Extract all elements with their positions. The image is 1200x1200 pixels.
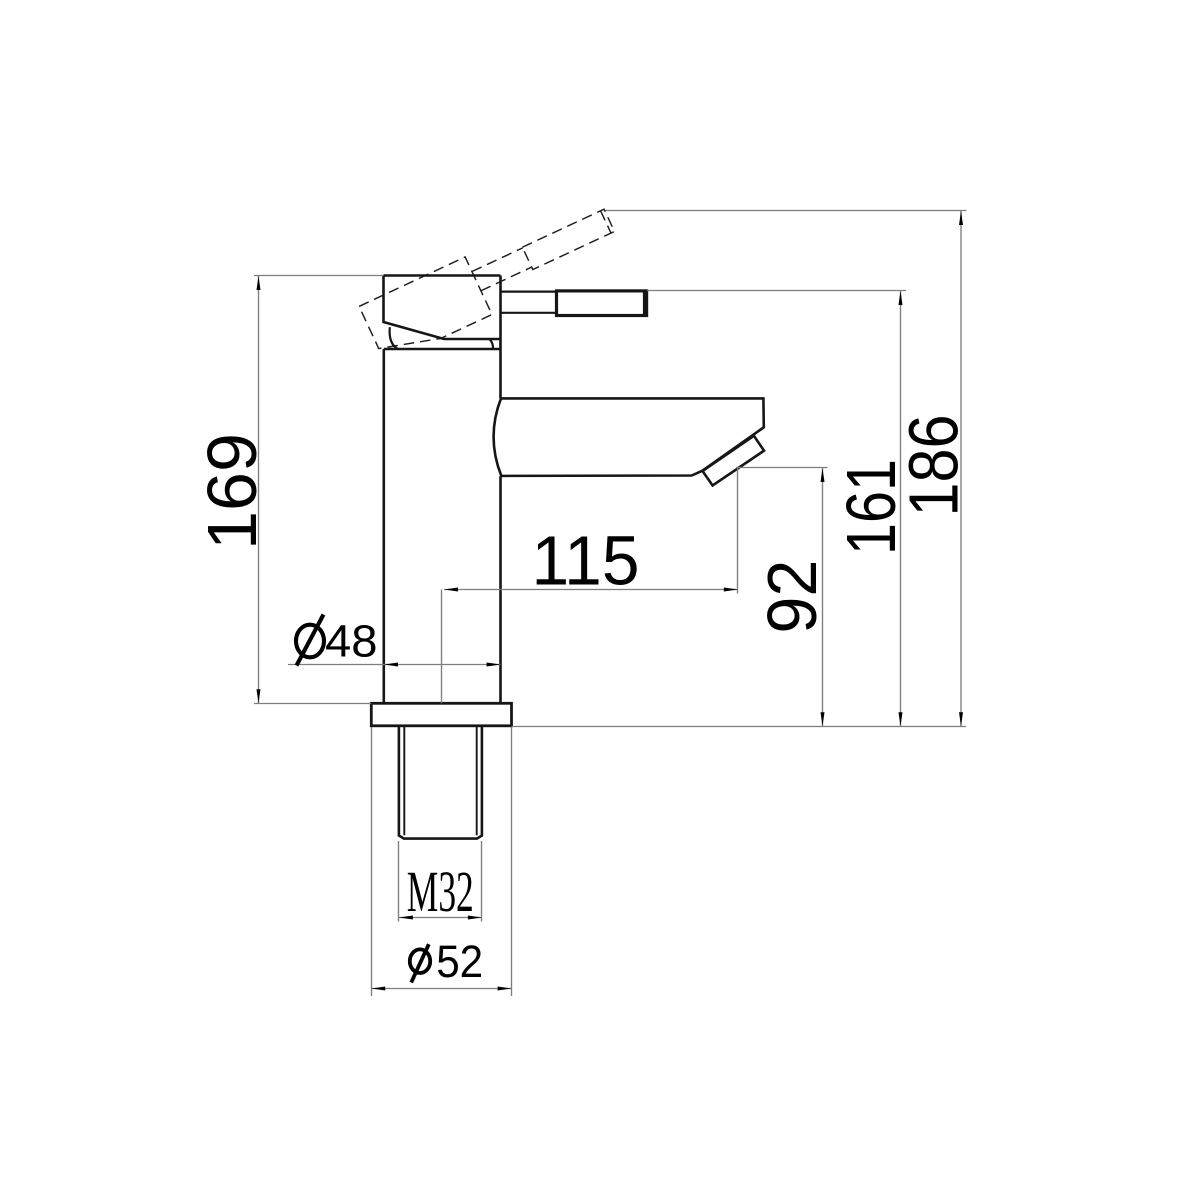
svg-text:92: 92 — [753, 560, 831, 634]
svg-text:M32: M32 — [407, 859, 474, 924]
svg-text:169: 169 — [193, 433, 271, 550]
svg-text:52: 52 — [436, 936, 483, 987]
svg-text:115: 115 — [532, 522, 640, 600]
svg-text:161: 161 — [832, 459, 910, 555]
svg-text:48: 48 — [325, 615, 378, 666]
